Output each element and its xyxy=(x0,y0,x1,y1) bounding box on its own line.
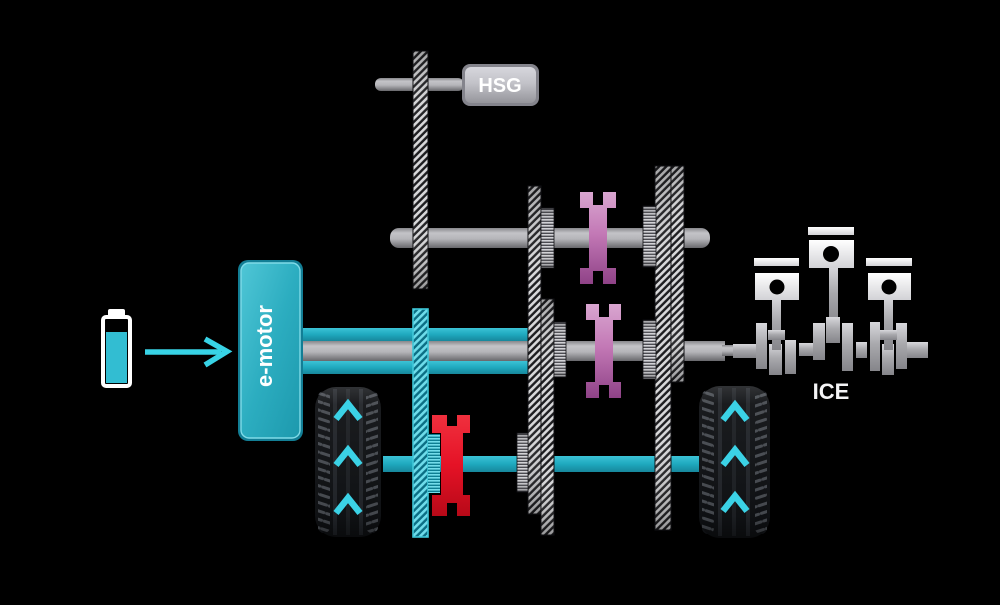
svg-text:ICE: ICE xyxy=(813,379,850,404)
svg-text:HSG: HSG xyxy=(478,75,521,97)
svg-text:e-motor: e-motor xyxy=(252,305,277,387)
